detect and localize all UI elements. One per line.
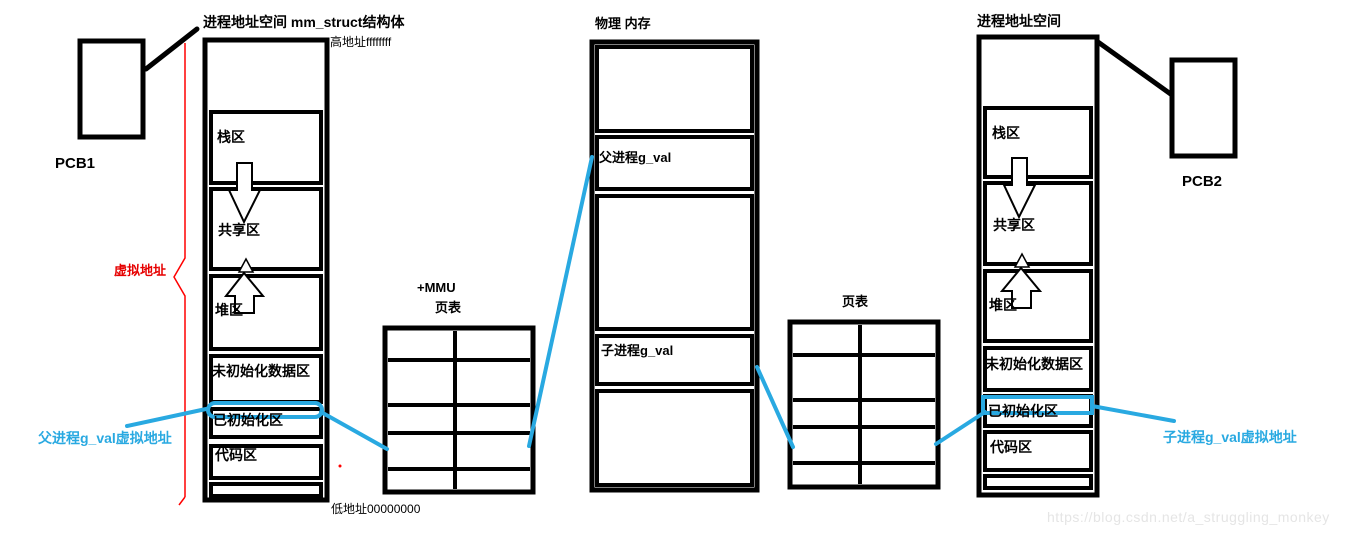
watermark: https://blog.csdn.net/a_struggling_monke… (1047, 510, 1330, 525)
parent-heap-label: 堆区 (215, 303, 243, 318)
child-data-label: 已初始化区 (988, 404, 1058, 419)
child-pointer-line (1092, 406, 1174, 421)
parent-shared-label: 共享区 (218, 223, 260, 238)
parent-bottom-strip (211, 484, 321, 496)
parent-to-pagetable-line (321, 412, 387, 449)
parent-stack-section (211, 112, 321, 183)
pcb2-label: PCB2 (1182, 174, 1222, 191)
diagram-artwork (0, 0, 1357, 539)
parent-gval-cell-label: 父进程g_val (599, 151, 671, 165)
child-bottom-strip (985, 476, 1091, 488)
pagetable-to-parent-gval-line (529, 157, 592, 446)
high-address-label: 高地址ffffffff (330, 36, 391, 49)
child-stack-label: 栈区 (992, 126, 1020, 141)
pcb2-connector-line (1098, 42, 1172, 95)
child-code-label: 代码区 (990, 440, 1032, 455)
child-heap-label: 堆区 (989, 298, 1017, 313)
child-bss-label: 未初始化数据区 (985, 357, 1083, 372)
parent-pointer-line (127, 409, 206, 426)
child-shared-label: 共享区 (993, 218, 1035, 233)
stray-red-dot (339, 465, 342, 468)
low-address-label: 低地址00000000 (331, 503, 420, 516)
parent-stack-label: 栈区 (217, 130, 245, 145)
child-gval-pointer-label: 子进程g_val虚拟地址 (1163, 430, 1297, 445)
pcb1-box (80, 41, 143, 137)
virtual-address-label: 虚拟地址 (114, 264, 166, 278)
child-stack-section (985, 108, 1091, 177)
physical-memory-band (597, 196, 752, 329)
child-page-table-title: 页表 (842, 295, 868, 309)
parent-space-title: 进程地址空间 mm_struct结构体 (203, 15, 404, 30)
parent-page-table-title: 页表 (435, 301, 461, 315)
parent-bss-label: 未初始化数据区 (212, 364, 310, 379)
pcb1-label: PCB1 (55, 156, 95, 173)
pcb2-box (1172, 60, 1235, 156)
child-space-title: 进程地址空间 (977, 14, 1061, 29)
parent-code-label: 代码区 (215, 448, 257, 463)
parent-data-label: 已初始化区 (213, 413, 283, 428)
physical-memory-band (597, 47, 752, 131)
virtual-address-bracket (174, 43, 185, 497)
physical-memory-band (597, 391, 752, 485)
physical-memory-title: 物理 内存 (595, 17, 651, 31)
memory-diagram: 进程地址空间 mm_struct结构体 高地址ffffffff PCB1 虚拟地… (0, 0, 1357, 539)
child-gval-cell-label: 子进程g_val (601, 344, 673, 358)
pcb1-connector-line (146, 29, 197, 69)
parent-gval-pointer-label: 父进程g_val虚拟地址 (38, 431, 172, 446)
virtual-address-bracket-tick (179, 497, 185, 505)
mmu-label: +MMU (417, 281, 456, 295)
